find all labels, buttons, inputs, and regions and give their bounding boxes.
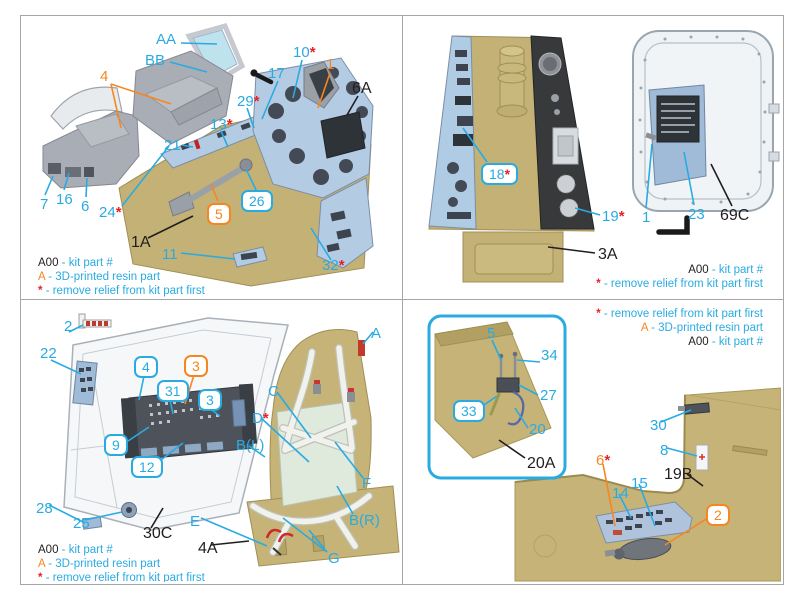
- callout-30c: 30C: [143, 526, 172, 542]
- quadrant-cockpit-tub: AA BB 4 10* 1 17 6A 29* 13* 21 26 5 24* …: [21, 16, 402, 299]
- callout-33: 33: [453, 400, 485, 422]
- callout-6a: 6A: [352, 81, 372, 97]
- callout-16: 16: [56, 192, 73, 207]
- legend-star-line: * - remove relief from kit part first: [596, 278, 763, 291]
- callout-bb: BB: [145, 53, 165, 68]
- callout-1a: 1A: [131, 235, 151, 251]
- callout-32: 32*: [322, 258, 345, 273]
- callout-19b: 19B: [664, 467, 692, 483]
- quadrant-grid: AA BB 4 10* 1 17 6A 29* 13* 21 26 5 24* …: [20, 15, 784, 585]
- placard-8-art: [696, 445, 708, 470]
- callout-2: 2: [64, 319, 72, 334]
- instruction-sheet: AA BB 4 10* 1 17 6A 29* 13* 21 26 5 24* …: [0, 0, 800, 600]
- callout-29: 29*: [237, 94, 260, 109]
- callout-5: 5: [207, 203, 231, 225]
- callout-21: 21: [164, 138, 181, 153]
- callout-19: 19*: [602, 209, 625, 224]
- legend-star-line: * - remove relief from kit part first: [596, 308, 763, 321]
- callout-g: G: [328, 551, 340, 566]
- callout-25: 25: [73, 516, 90, 531]
- legend-bottom-right: * - remove relief from kit part first A …: [596, 308, 763, 350]
- callout-c: C: [268, 384, 279, 399]
- legend-top-right: A00 - kit part # * - remove relief from …: [596, 264, 763, 292]
- quadrant-sidewall-and-seat: 2 22 4 3 31 3 9 12 28 25 30C A C D* B(L)…: [21, 300, 402, 582]
- callout-a: A: [371, 326, 381, 341]
- callout-12: 12: [131, 456, 163, 478]
- callout-9: 9: [104, 434, 128, 456]
- callout-1: 1: [642, 210, 650, 225]
- callout-f: F: [362, 476, 371, 491]
- callout-20: 20: [529, 422, 546, 437]
- quadrant-sidewall-detail: 5 34 27 33 20 20A 30 8 6* 14 15 19B 2 * …: [403, 300, 781, 582]
- legend-star-line: * - remove relief from kit part first: [38, 285, 205, 298]
- callout-30: 30: [650, 418, 667, 433]
- callout-18: 18*: [481, 163, 518, 185]
- callout-3: 3: [198, 389, 222, 411]
- striped-handle-part: [79, 314, 111, 328]
- legend-kit-line: A00 - kit part #: [38, 257, 205, 270]
- callout-8: 8: [660, 443, 668, 458]
- callout-4: 4: [134, 356, 158, 378]
- callout-d: D*: [252, 411, 269, 426]
- callout-4: 4: [100, 69, 108, 84]
- callout-13: 13*: [210, 117, 233, 132]
- part-30-art: [678, 403, 709, 414]
- quadrant-console-and-door: 18* 19* 3A 1 23 69C A00 - kit part # * -…: [403, 16, 781, 299]
- legend-kit-line: A00 - kit part #: [596, 336, 763, 349]
- allen-key-part: [659, 218, 687, 232]
- center-console-art: [429, 36, 594, 282]
- callout-27: 27: [540, 388, 557, 403]
- callout-15: 15: [631, 476, 648, 491]
- callout-34: 34: [541, 348, 558, 363]
- legend-star-line: * - remove relief from kit part first: [38, 572, 205, 582]
- callout-22: 22: [40, 346, 57, 361]
- callout-69c: 69C: [720, 208, 749, 224]
- legend-resin-line: A - 3D-printed resin part: [596, 322, 763, 335]
- callout-23: 23: [688, 207, 705, 222]
- callout-17: 17: [268, 66, 285, 81]
- callout-5: 5: [487, 326, 495, 341]
- callout-14: 14: [612, 486, 629, 501]
- legend-resin-line: A - 3D-printed resin part: [38, 558, 205, 571]
- callout-24: 24*: [99, 205, 122, 220]
- callout-28: 28: [36, 501, 53, 516]
- legend-kit-line: A00 - kit part #: [38, 544, 205, 557]
- legend-resin-line: A - 3D-printed resin part: [38, 271, 205, 284]
- legend-kit-line: A00 - kit part #: [596, 264, 763, 277]
- callout-3a: 3A: [598, 247, 618, 263]
- callout-26: 26: [241, 190, 273, 212]
- resin-front-section-art: [43, 87, 139, 188]
- callout-e: E: [190, 514, 200, 529]
- callout-31: 31: [157, 380, 189, 402]
- grommet-25: [122, 503, 137, 518]
- callout-2: 2: [706, 504, 730, 526]
- callout-6: 6: [81, 199, 89, 214]
- callout-7: 7: [40, 197, 48, 212]
- panel-22: [73, 361, 97, 405]
- callout-6: 6*: [596, 453, 610, 468]
- legend-top-left: A00 - kit part # A - 3D-printed resin pa…: [38, 257, 205, 299]
- callout-3-resin: 3: [184, 355, 208, 377]
- callout-aa: AA: [156, 32, 176, 47]
- console-door-artwork: [403, 16, 781, 299]
- callout-10: 10*: [293, 45, 316, 60]
- legend-bottom-left: A00 - kit part # A - 3D-printed resin pa…: [38, 544, 205, 582]
- callout-20a: 20A: [527, 456, 555, 472]
- callout-br: B(R): [349, 513, 380, 528]
- callout-bl: B(L): [236, 438, 264, 453]
- callout-1: 1: [326, 57, 334, 72]
- canopy-door-art: [633, 31, 779, 232]
